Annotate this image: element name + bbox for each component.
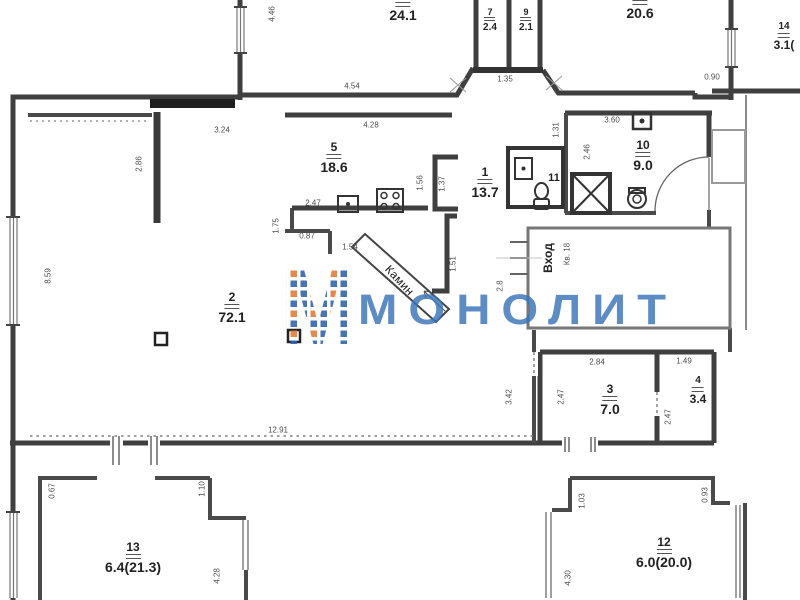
dimension-label: 0.87 bbox=[299, 232, 315, 241]
room-label-10: 109.0 bbox=[633, 139, 652, 173]
watermark-logo: М bbox=[281, 246, 355, 367]
room-label-3: 37.0 bbox=[600, 383, 619, 417]
dimension-label: 0.93 bbox=[701, 487, 710, 503]
dimension-label: 1.75 bbox=[272, 218, 281, 234]
dimension-label: 4.54 bbox=[344, 82, 360, 91]
dimension-label: 1.03 bbox=[578, 493, 587, 509]
dimension-label: 1.51 bbox=[449, 256, 458, 272]
dimension-label: 2.86 bbox=[135, 156, 144, 172]
dimension-label: 2.47 bbox=[305, 199, 321, 208]
column bbox=[155, 333, 167, 345]
dimension-label: 1.31 bbox=[552, 122, 561, 138]
dimension-label: 12.91 bbox=[268, 426, 288, 435]
thick-wall bbox=[150, 99, 235, 108]
dimension-label: 1.35 bbox=[497, 75, 513, 84]
dimension-label: 1.10 bbox=[198, 481, 207, 497]
dimension-label: 4.28 bbox=[363, 121, 379, 130]
room-label-13: 136.4(21.3) bbox=[105, 541, 161, 575]
elevator-shaft bbox=[572, 174, 610, 213]
dimension-label: 4.30 bbox=[564, 570, 573, 586]
entrance-label: Вход bbox=[541, 243, 555, 273]
dimension-label: 2.47 bbox=[664, 409, 673, 425]
door-swing bbox=[655, 157, 709, 211]
room-label-4: 43.4 bbox=[690, 376, 707, 406]
dimension-label: 4.28 bbox=[213, 568, 222, 584]
room-label-9: 92.1 bbox=[519, 8, 533, 33]
room-label-7: 72.4 bbox=[483, 8, 497, 33]
dimension-label: 3.42 bbox=[505, 389, 514, 405]
room-label-24-1: 24.1 bbox=[389, 2, 416, 23]
dimension-label: 1.54 bbox=[342, 243, 358, 252]
room-label-2: 272.1 bbox=[218, 291, 245, 325]
dimension-label: 0.67 bbox=[48, 483, 57, 499]
dimension-label: 2.8 bbox=[496, 280, 505, 291]
room-label-12: 126.0(20.0) bbox=[636, 536, 692, 570]
water-heater-icon bbox=[628, 188, 646, 208]
dimension-label: 1.56 bbox=[416, 175, 425, 191]
dimension-label: 2.47 bbox=[557, 389, 566, 405]
dimension-label: 3.24 bbox=[214, 126, 230, 135]
room-label-1: 113.7 bbox=[471, 166, 498, 200]
dimension-label: 1.37 bbox=[438, 176, 447, 192]
dimension-label: 3.60 bbox=[604, 116, 620, 125]
dimension-label: 0.90 bbox=[704, 73, 720, 82]
room-label-5: 518.6 bbox=[320, 141, 347, 175]
dimension-label: 2.84 bbox=[589, 358, 605, 367]
room-label-11: 11 bbox=[548, 172, 560, 184]
dimension-label: 4.46 bbox=[268, 6, 277, 22]
floorplan: М МОНОЛИТ 24.1 20.6 72.4 92.1 143.1( 518… bbox=[0, 0, 800, 600]
dimension-label: 2.46 bbox=[583, 144, 592, 160]
stair-vestibule bbox=[712, 130, 745, 183]
hall-jamb-right bbox=[432, 216, 457, 291]
apartment-number-label: Кв. 18 bbox=[563, 243, 572, 265]
inner-walls bbox=[28, 113, 745, 600]
dimension-label: 1.49 bbox=[676, 357, 692, 366]
room-label-14: 143.1( bbox=[774, 22, 795, 52]
room-label-20-6: 20.6 bbox=[626, 0, 653, 21]
dimension-label: 8.59 bbox=[44, 268, 53, 284]
